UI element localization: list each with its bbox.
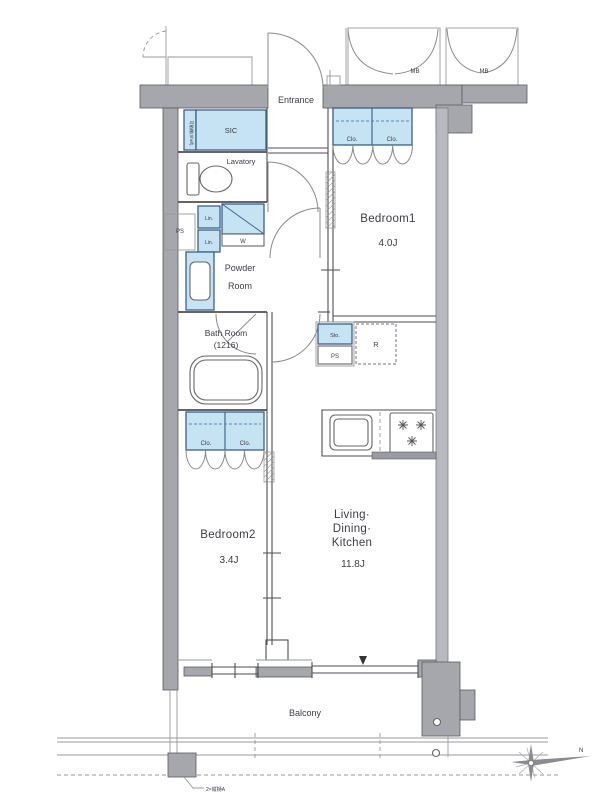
sliding-door-pocket-bedroom1 [326, 172, 335, 228]
kitchen-half-wall [372, 452, 436, 459]
bedroom1-closets: Clo. Clo. [333, 108, 412, 164]
kitchen [322, 410, 436, 459]
lavatory: Lavatory [187, 157, 256, 195]
mb-left-label: MB [411, 69, 420, 75]
bedroom2-closets: Clo. Clo. [186, 412, 264, 469]
window-center-mark [359, 656, 367, 665]
ldk-door-arc [272, 314, 320, 362]
meter-box-right [446, 28, 518, 85]
balcony-railing [57, 738, 548, 755]
ldk-label-2: Dining· [333, 523, 372, 535]
washer-label: W [240, 239, 246, 245]
entrance-door-arc [268, 33, 323, 88]
vanity-basin [190, 262, 210, 300]
clo-b2-right-label: Clo. [240, 441, 251, 447]
ps-kitchen-label: PS [331, 354, 339, 360]
sliding-door-pocket-bedroom2 [264, 452, 274, 482]
linen-top-label: Lin. [205, 216, 213, 222]
kitchen-storage-block: Sto. PS R [316, 322, 396, 366]
meter-boxes: MB MB [346, 28, 518, 85]
entrance-label: Entrance [278, 95, 314, 105]
fridge-label: R [373, 340, 379, 349]
sill-center [256, 667, 312, 677]
clo-b1-right-label: Clo. [387, 137, 398, 143]
ldk: Living· Dining· Kitchen 11.8J [332, 509, 372, 570]
bedroom1: Bedroom1 4.0J [360, 213, 415, 249]
toilet-tank [187, 163, 199, 195]
balcony-label: Balcony [289, 708, 322, 718]
lavatory-door-arc [268, 162, 318, 212]
wall-right [436, 108, 448, 668]
doorbell-niche [327, 76, 340, 85]
wall-top-right [323, 85, 462, 108]
utility-area: PS Lin. Lin. W [165, 204, 264, 252]
compass-north-mark: N [579, 748, 583, 754]
drain-circle-2 [433, 750, 440, 757]
wall-left [163, 108, 178, 690]
ldk-label-1: Living· [334, 509, 370, 521]
sic-shelf-label: 可動棚(Shelf) [188, 121, 195, 147]
downpipe-note: 2×縦樋A [206, 786, 226, 793]
wall-block-bottom-right [422, 662, 460, 736]
floor-plan-page: MB MB [0, 0, 600, 800]
wall-top-ext [462, 85, 527, 103]
bath-label-1: Bath Room [205, 328, 248, 338]
drain-circle-1 [434, 719, 441, 726]
mb-right-label: MB [480, 69, 489, 75]
bedroom2: Bedroom2 3.4J [200, 529, 255, 566]
pier-step [266, 640, 288, 660]
bathtub-inner [194, 360, 258, 400]
meter-box-left [348, 28, 440, 85]
bedroom2-size: 3.4J [220, 555, 239, 566]
bedroom1-size: 4.0J [379, 238, 398, 249]
lavatory-label: Lavatory [227, 157, 256, 166]
bedroom1-label: Bedroom1 [360, 213, 415, 225]
powder-room: Powder Room [186, 252, 255, 310]
compass-icon: N [511, 744, 591, 782]
bath-room: Bath Room (1216) [190, 328, 262, 404]
powder-door-arc [270, 208, 320, 258]
ldk-size: 11.8J [341, 559, 365, 570]
sic-closet: SIC 可動棚(Shelf) [184, 110, 266, 150]
linen-bottom-label: Lin. [205, 240, 213, 246]
stove [390, 413, 433, 453]
sill-bedroom2 [184, 667, 212, 676]
folding-doors-b2 [186, 450, 264, 469]
clo-b1-left-label: Clo. [347, 137, 358, 143]
sic-label: SIC [225, 126, 238, 135]
toilet-bowl [200, 166, 232, 192]
clo-b2-left-label: Clo. [201, 441, 212, 447]
floor-plan-drawing: MB MB [0, 0, 600, 800]
ldk-label-3: Kitchen [332, 537, 372, 549]
bedroom2-label: Bedroom2 [200, 529, 255, 541]
powder-label-2: Room [228, 281, 252, 291]
balcony: Balcony 2×縦樋A [57, 690, 560, 793]
window-ldk [312, 666, 418, 673]
bath-label-2: (1216) [214, 340, 239, 350]
corridor-structure [143, 26, 252, 85]
wall-block-ext [460, 690, 475, 720]
downpipe-box [168, 753, 196, 777]
kitchen-sink [334, 419, 368, 446]
storage-label: Sto. [330, 333, 340, 339]
wall-top-left [140, 85, 268, 108]
powder-label-1: Powder [225, 263, 256, 273]
folding-doors-b1 [333, 145, 412, 164]
ps-wall-label: PS [176, 229, 184, 235]
